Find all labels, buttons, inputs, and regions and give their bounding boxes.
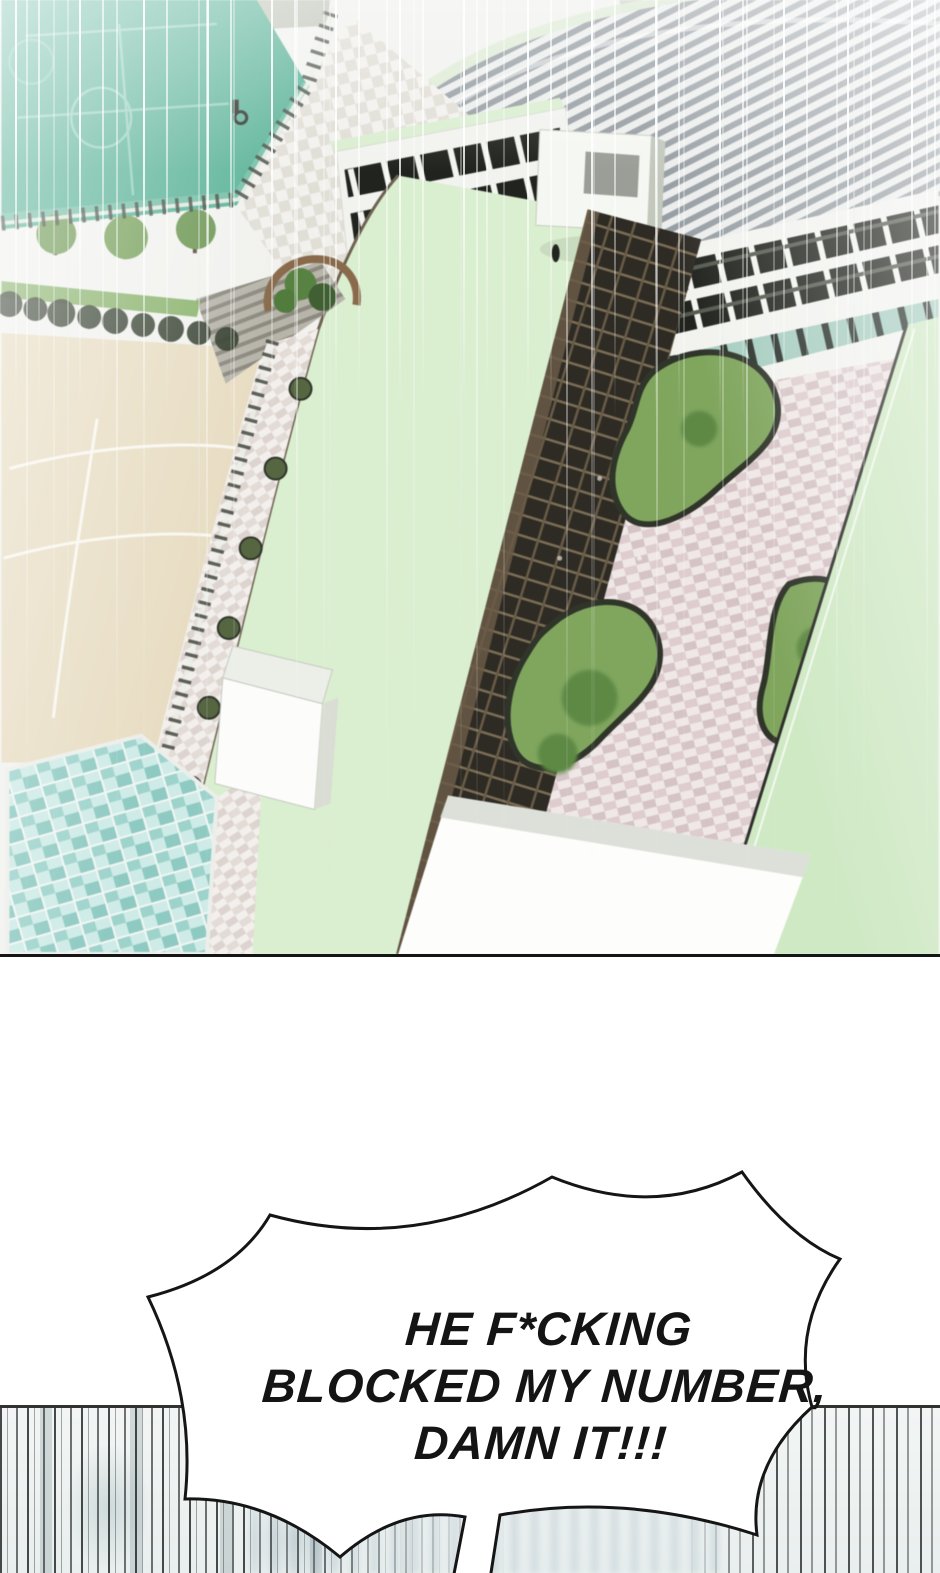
tree (562, 670, 618, 726)
speech-line-1: HE F*CKING (167, 1300, 931, 1357)
shrub (215, 327, 239, 351)
white-box-structure (215, 646, 339, 809)
speckle (597, 476, 602, 481)
bush (198, 697, 220, 719)
bush (309, 283, 337, 311)
bush (218, 617, 240, 639)
bush (290, 378, 312, 400)
speckle (637, 556, 642, 561)
comic-page: HE F*CKING BLOCKED MY NUMBER, DAMN IT!!! (0, 0, 940, 1573)
bush (274, 289, 298, 313)
tree (681, 411, 717, 447)
figure (552, 244, 560, 262)
shrub (158, 316, 184, 342)
speckle (657, 616, 662, 621)
speech-bubble-text: HE F*CKING BLOCKED MY NUMBER, DAMN IT!!! (159, 1300, 931, 1471)
shrub (102, 308, 128, 334)
shrub (23, 297, 47, 321)
rooftop-box-door (584, 152, 640, 198)
campus-aerial-panel (0, 0, 940, 957)
shrub (131, 313, 155, 337)
shrub (187, 321, 211, 345)
shrub (77, 305, 101, 329)
campus-scene (0, 0, 940, 954)
tree (538, 734, 578, 774)
tree (176, 209, 216, 249)
speech-line-2: BLOCKED MY NUMBER, (163, 1357, 927, 1414)
speech-line-3: DAMN IT!!! (159, 1414, 923, 1471)
bush (240, 537, 262, 559)
speech-bubble (0, 957, 940, 1573)
speckle (557, 556, 562, 561)
shrub (47, 299, 75, 327)
tree (104, 215, 148, 259)
bush (265, 458, 287, 480)
